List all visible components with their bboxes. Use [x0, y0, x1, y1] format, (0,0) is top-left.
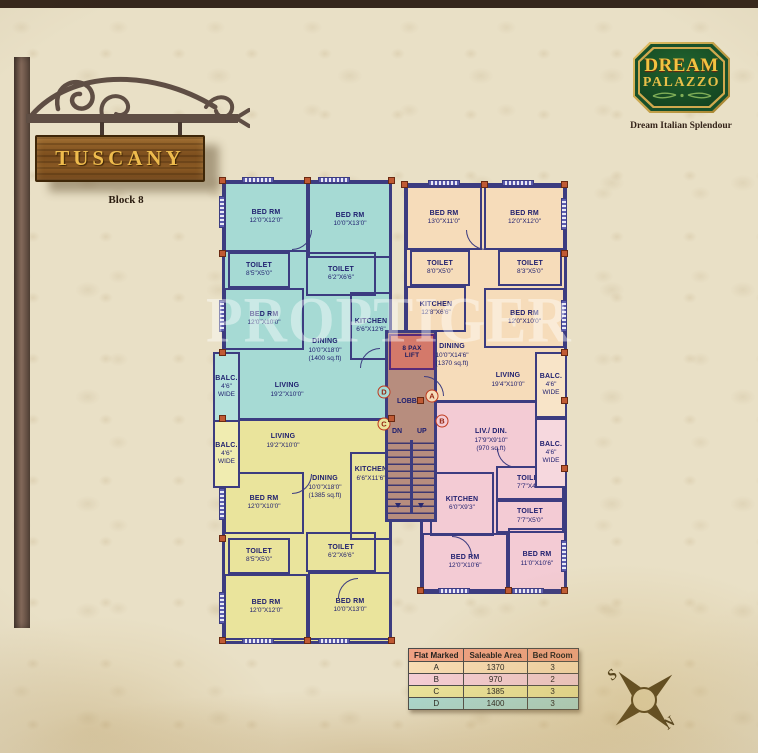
room-dims: 6'0"X9'3" — [449, 504, 475, 512]
room-name: KITCHEN — [355, 466, 388, 475]
room-dims: 12'0"X10'0" — [247, 319, 280, 327]
room-toilet: TOILET 8'0"X5'0" — [410, 250, 470, 286]
sign-title: TUSCANY — [55, 146, 185, 171]
wall-pier — [219, 250, 226, 257]
room-dims: 10'0"X18'0" — [308, 483, 341, 491]
laurel-leaves-icon — [650, 90, 714, 101]
room-name: BED RM — [250, 311, 279, 320]
lift-shaft: 8 PAX LIFT — [389, 334, 435, 370]
window — [318, 638, 350, 644]
stair-arrow-icon — [418, 503, 424, 508]
wall-pier — [561, 349, 568, 356]
wall-pier — [304, 637, 311, 644]
room-toilet: TOILET 8'5"X5'0" — [228, 538, 290, 574]
room-dims: 8'0"X5'0" — [427, 268, 453, 276]
room-bedroom: BED RM 12'0"X10'0" — [484, 288, 565, 348]
area-table: Flat Marked Saleable Area Bed Room A 137… — [408, 648, 579, 710]
room-name: TOILET — [328, 544, 354, 553]
wall-pier — [417, 397, 424, 404]
stairs-up-label: UP — [417, 428, 427, 435]
wall-pier — [561, 250, 568, 257]
cell-flat: A — [409, 662, 464, 674]
window — [428, 180, 460, 186]
room-name: BALC. — [540, 373, 562, 382]
room-note: WIDE — [218, 391, 235, 399]
room-dining-label: DINING 10'0"X18'0" (1385 sq.ft) — [308, 475, 341, 500]
cell-beds: 2 — [527, 674, 578, 686]
cell-flat: C — [409, 686, 464, 698]
room-name: BED RM — [336, 598, 365, 607]
room-area: (1385 sq.ft) — [308, 491, 341, 499]
room-dims: 6'6"X12'6" — [356, 326, 386, 334]
room-toilet: TOILET 6'2"X6'6" — [306, 252, 376, 296]
block-label: Block 8 — [83, 194, 169, 206]
stairs-down-label: DN — [392, 428, 402, 435]
room-name: LIVING — [266, 433, 299, 442]
room-name: BED RM — [250, 495, 279, 504]
cell-flat: B — [409, 674, 464, 686]
window — [219, 300, 225, 332]
cell-area: 1400 — [464, 698, 527, 710]
tuscany-sign: TUSCANY — [35, 135, 205, 182]
room-dims: 10'0"X14'6" — [435, 351, 468, 359]
room-note: WIDE — [218, 458, 235, 466]
room-bedroom: BED RM 12'0"X12'0" — [224, 574, 308, 640]
room-dining-label: DINING 10'0"X14'6" (1370 sq.ft) — [435, 343, 468, 368]
room-area: (1370 sq.ft) — [435, 359, 468, 367]
room-kitchen: KITCHEN 12'8"X6'6" — [406, 286, 466, 332]
header-flat-marked: Flat Marked — [409, 649, 464, 662]
room-name: BED RM — [523, 551, 552, 560]
room-balcony: BALC. 4'6" WIDE — [213, 352, 240, 422]
window — [219, 196, 225, 228]
window — [561, 198, 567, 230]
marker-letter: A — [429, 392, 434, 401]
wall-pier — [388, 637, 395, 644]
logo-name-line1: DREAM — [644, 57, 718, 75]
room-name: BED RM — [430, 210, 459, 219]
cell-beds: 3 — [527, 662, 578, 674]
room-living-label: LIVING 19'2"X10'0" — [266, 433, 299, 450]
room-living-label: LIVING 19'2"X10'0" — [270, 382, 303, 399]
stair-arrow-icon — [395, 503, 401, 508]
flat-a-marker: A — [426, 390, 439, 403]
cell-area: 1385 — [464, 686, 527, 698]
wall-pier — [388, 415, 395, 422]
window — [561, 300, 567, 332]
room-name: BED RM — [336, 212, 365, 221]
room-dims: 12'0"X12'0" — [249, 217, 282, 225]
room-bedroom: BED RM 12'0"X12'0" — [484, 186, 565, 250]
room-dims: 19'2"X10'0" — [270, 390, 303, 398]
room-dims: 8'5"X5'0" — [246, 270, 272, 278]
room-name: BED RM — [510, 210, 539, 219]
wall-pier — [219, 535, 226, 542]
room-name: LIVING — [270, 382, 303, 391]
room-dims: 12'0"X10'6" — [448, 562, 481, 570]
room-name: BED RM — [252, 209, 281, 218]
room-bedroom: BED RM 12'0"X10'0" — [224, 288, 304, 350]
room-dims: 4'6" — [221, 450, 232, 458]
room-name: LIVING — [491, 372, 524, 381]
cell-beds: 3 — [527, 686, 578, 698]
window — [242, 638, 274, 644]
wall-pier — [304, 177, 311, 184]
lift-label: LIFT — [405, 352, 420, 360]
room-bedroom: BED RM 10'0"X13'0" — [308, 182, 392, 258]
wall-pier — [561, 587, 568, 594]
header-bed-room: Bed Room — [527, 649, 578, 662]
marker-letter: D — [381, 388, 386, 397]
room-living-label: LIVING 19'4"X10'0" — [491, 372, 524, 389]
compass-south-label: S — [604, 666, 621, 684]
room-dims: 6'2"X6'6" — [328, 552, 354, 560]
wall-pier — [561, 465, 568, 472]
wall-pier — [219, 177, 226, 184]
room-dims: 19'4"X10'0" — [491, 380, 524, 388]
marker-letter: B — [439, 417, 444, 426]
header-saleable-area: Saleable Area — [464, 649, 527, 662]
room-name: TOILET — [246, 262, 272, 271]
window — [512, 588, 544, 594]
room-name: DINING — [435, 343, 468, 352]
room-name: BED RM — [510, 310, 539, 319]
room-kitchen: KITCHEN 6'0"X9'3" — [430, 472, 494, 536]
room-dims: 13'0"X11'0" — [428, 218, 461, 226]
wall-pier — [561, 397, 568, 404]
room-balcony: BALC. 4'6" WIDE — [535, 418, 567, 488]
table-row-d: D 1400 3 — [409, 698, 579, 710]
wall-pier — [388, 177, 395, 184]
room-dims: 6'6"X11'6" — [356, 475, 385, 483]
room-note: WIDE — [543, 389, 560, 397]
room-dims: 12'0"X10'0" — [508, 318, 541, 326]
room-note: WIDE — [543, 457, 560, 465]
room-balcony: BALC. 4'6" WIDE — [213, 420, 240, 488]
room-name: TOILET — [246, 548, 272, 557]
room-name: BALC. — [215, 442, 237, 451]
room-dims: 12'8"X6'6" — [421, 309, 451, 317]
room-dims: 7'7"X5'0" — [517, 517, 543, 525]
flat-b-marker: B — [436, 415, 449, 428]
wall-pier — [505, 587, 512, 594]
flat-d-marker: D — [378, 386, 391, 399]
window — [502, 180, 534, 186]
lift-label: 8 PAX — [402, 345, 421, 353]
room-dims: 10'0"X13'0" — [333, 606, 366, 614]
wall-pier — [219, 415, 226, 422]
room-dims: 6'2"X6'6" — [328, 274, 354, 282]
room-name: BED RM — [252, 599, 281, 608]
cell-beds: 3 — [527, 698, 578, 710]
room-name: TOILET — [517, 260, 543, 269]
room-dims: 12'0"X12'0" — [249, 607, 282, 615]
room-toilet: TOILET 6'2"X6'6" — [306, 532, 376, 572]
wall-pier — [417, 587, 424, 594]
table-row-c: C 1385 3 — [409, 686, 579, 698]
room-dims: 12'0"X10'0" — [247, 503, 280, 511]
cell-area: 970 — [464, 674, 527, 686]
table-row-a: A 1370 3 — [409, 662, 579, 674]
marker-letter: C — [381, 420, 386, 429]
room-dims: 4'6" — [546, 449, 557, 457]
logo-name-line2: PALAZZO — [643, 75, 720, 90]
window — [219, 488, 225, 520]
logo-tagline: Dream Italian Splendour — [612, 121, 750, 131]
room-dims: 10'0"X18'0" — [308, 346, 341, 354]
room-name: KITCHEN — [420, 301, 453, 310]
room-dims: 4'6" — [221, 383, 232, 391]
window — [318, 177, 350, 183]
cell-area: 1370 — [464, 662, 527, 674]
room-name: KITCHEN — [355, 318, 388, 327]
dream-palazzo-logo: DREAM PALAZZO — [633, 42, 730, 113]
room-dims: 8'5"X5'0" — [246, 556, 272, 564]
brochure-page: TUSCANY Block 8 DREAM PALAZZO Dream Ital… — [0, 0, 758, 753]
cell-flat: D — [409, 698, 464, 710]
window — [219, 592, 225, 624]
room-name: KITCHEN — [446, 496, 479, 505]
wall-pier — [401, 181, 408, 188]
wall-pier — [481, 181, 488, 188]
room-name: LIV./ DIN. — [474, 428, 507, 437]
table-row-b: B 970 2 — [409, 674, 579, 686]
room-dims: 19'2"X10'0" — [266, 441, 299, 449]
room-bedroom: BED RM 11'0"X10'6" — [508, 528, 566, 591]
room-name: TOILET — [517, 508, 543, 517]
room-name: DINING — [308, 338, 341, 347]
window — [561, 540, 567, 572]
wall-pier — [219, 637, 226, 644]
room-area: (1400 sq.ft) — [308, 354, 341, 362]
window — [438, 588, 470, 594]
room-dims: 4'6" — [546, 381, 557, 389]
window — [242, 177, 274, 183]
room-name: DINING — [308, 475, 341, 484]
room-dims: 10'0"X13'0" — [333, 220, 366, 228]
room-toilet: TOILET 8'3"X5'0" — [498, 250, 562, 286]
room-name: BALC. — [215, 375, 237, 384]
room-name: TOILET — [427, 260, 453, 269]
wall-pier — [561, 181, 568, 188]
compass-icon: S N — [598, 650, 698, 750]
room-name: BALC. — [540, 441, 562, 450]
room-dining-label: DINING 10'0"X18'0" (1400 sq.ft) — [308, 338, 341, 363]
room-balcony: BALC. 4'6" WIDE — [535, 352, 567, 418]
room-dims: 11'0"X10'6" — [521, 560, 554, 568]
room-toilet: TOILET 8'5"X5'0" — [228, 252, 290, 288]
room-dims: 12'0"X12'0" — [508, 218, 541, 226]
wall-pier — [219, 349, 226, 356]
room-name: TOILET — [328, 266, 354, 275]
room-dims: 17'9"X9'10" — [474, 436, 507, 444]
top-border — [0, 0, 758, 8]
room-dims: 8'3"X5'0" — [517, 268, 543, 276]
